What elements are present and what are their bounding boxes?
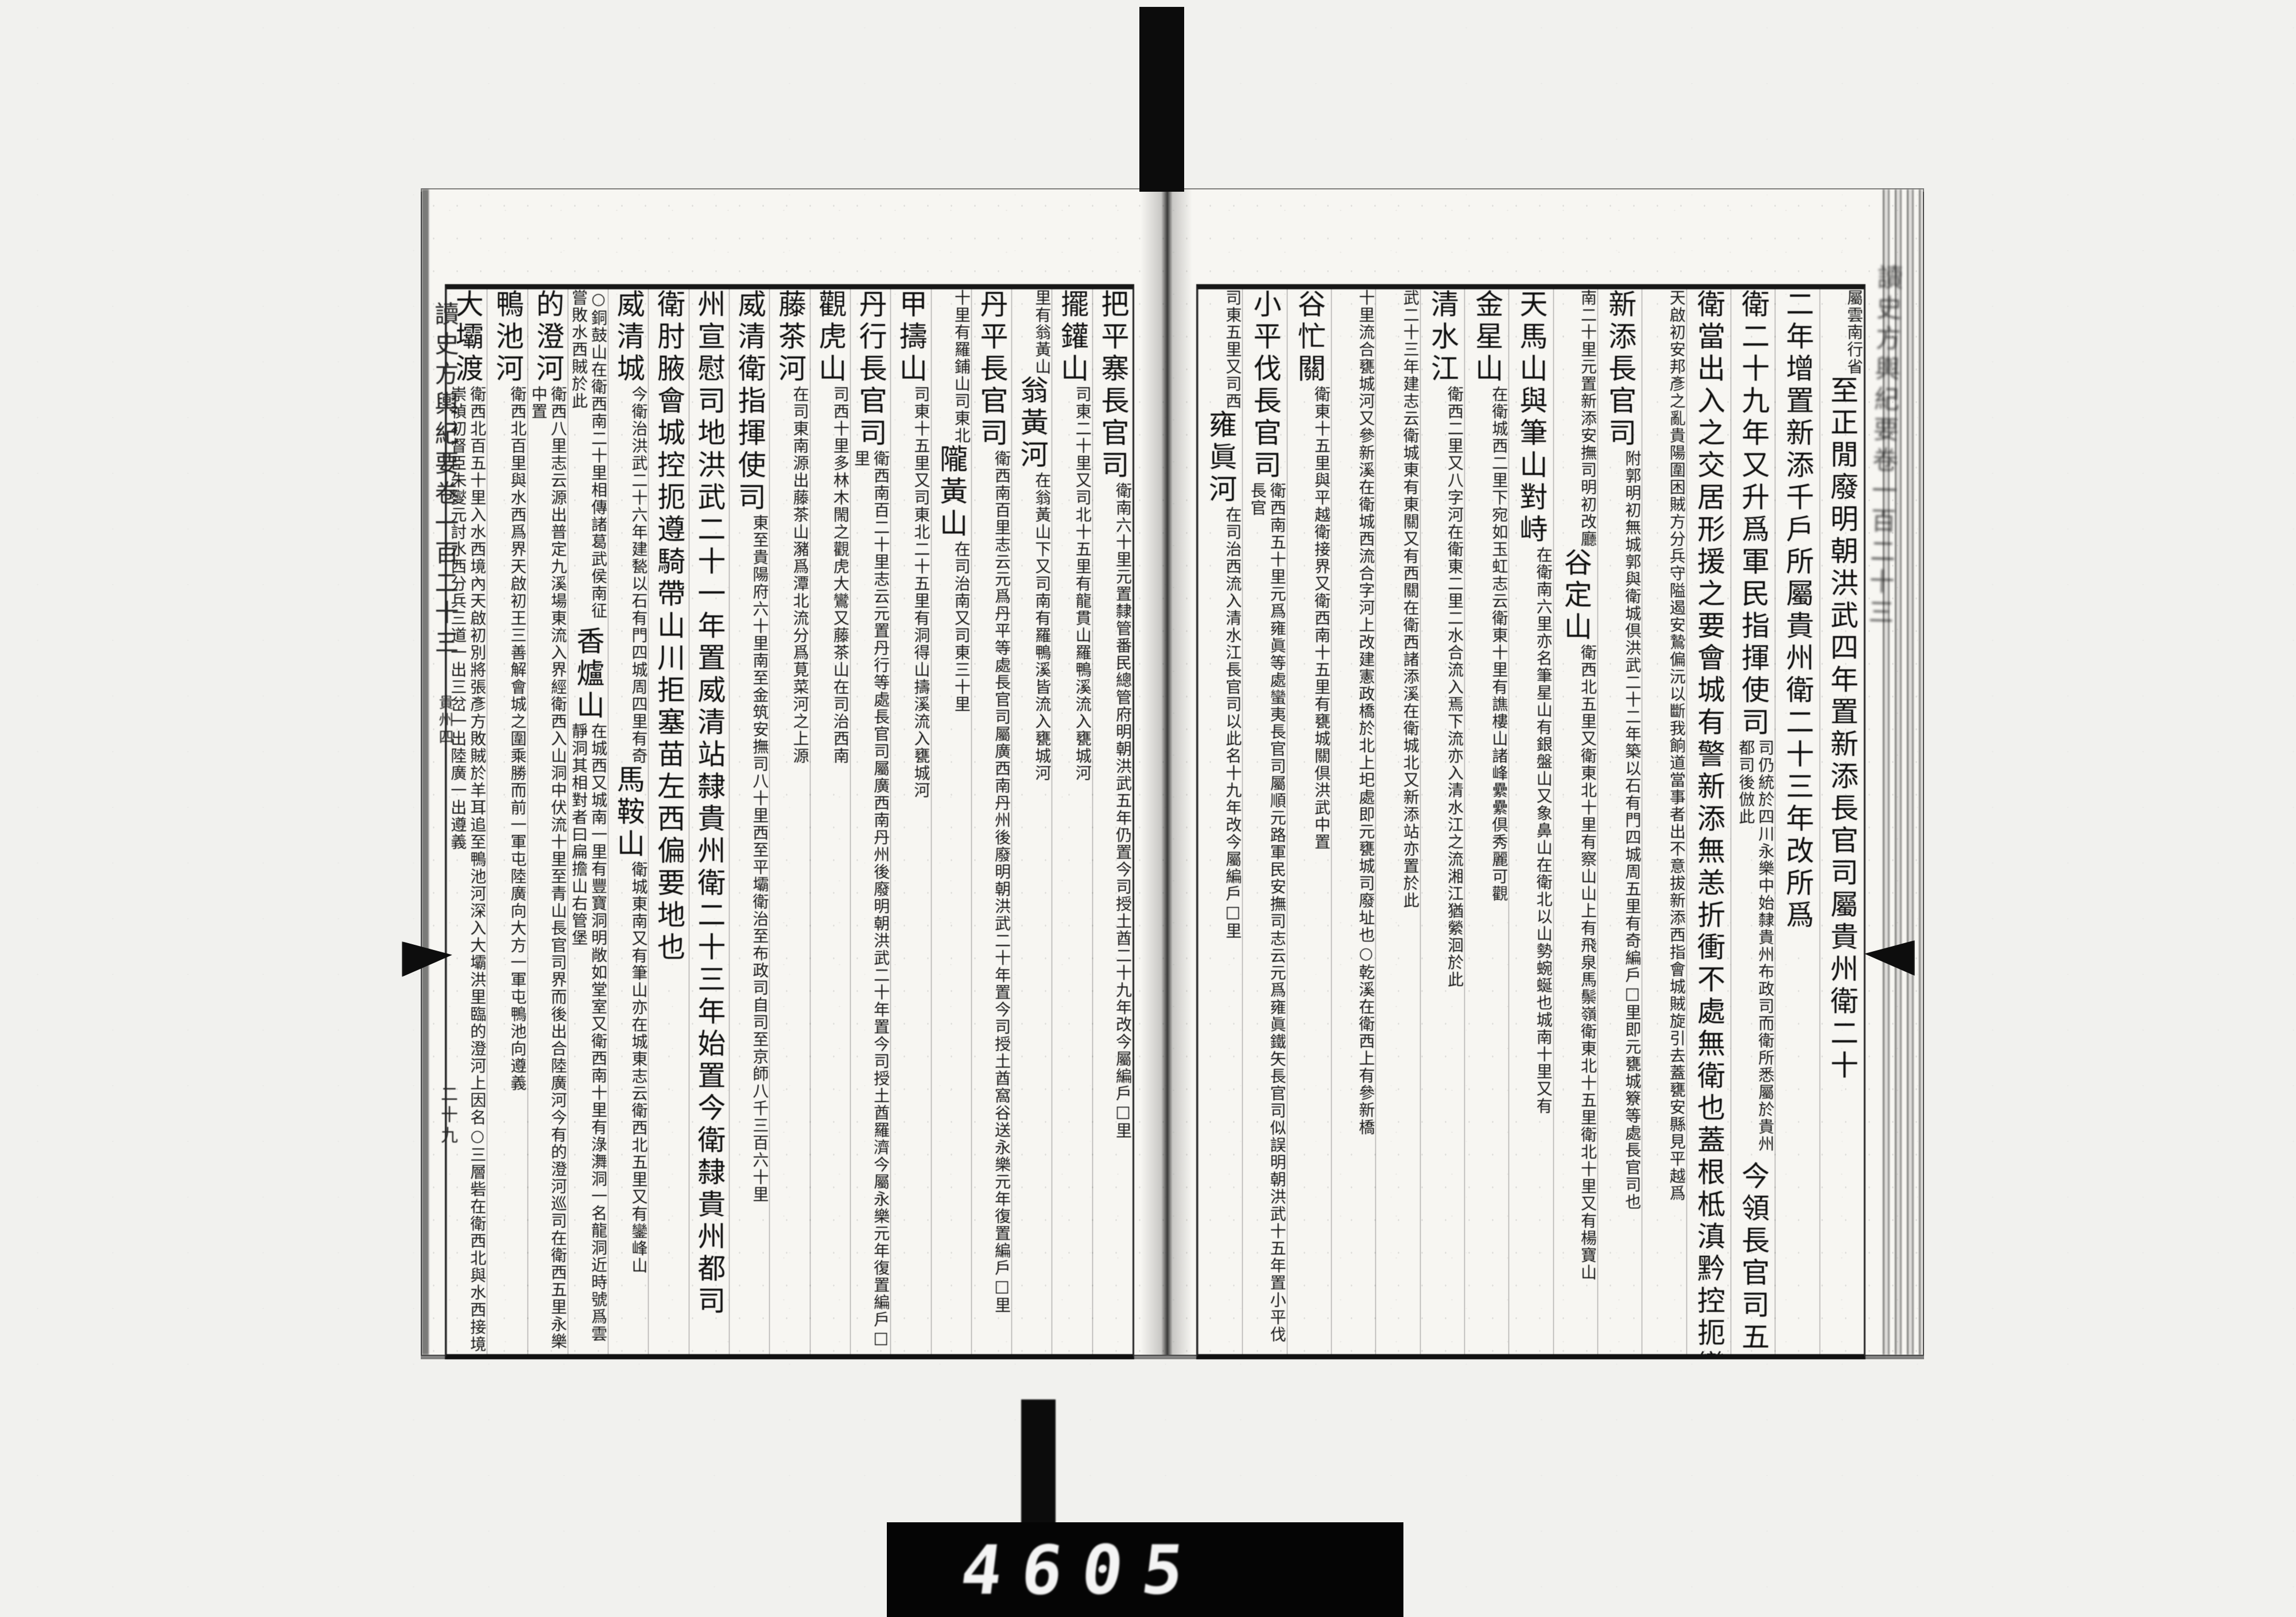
column-main-text: 天馬山與筆山對峙 (1511, 289, 1552, 546)
column-main-text: 二年增置新添千戶所屬貴州衛二十三年改所爲 (1778, 289, 1818, 932)
column-main-text: 金星山 (1467, 289, 1507, 386)
column-main-text: 谷定山 (1556, 548, 1596, 644)
column-main-text: 把平寨長官司 (1092, 289, 1133, 482)
text-column: 擺鑵山司東二十里又司北十五里有龍貫山羅鴨溪流入甕城河 (1052, 289, 1092, 1354)
column-annotation-text: 屬雲南行省 (1820, 289, 1864, 375)
column-annotation-text: 在司治南又司東三十里 (932, 541, 971, 713)
text-column: 天啟初安邦彥之亂貴陽圍困賊方分兵守隘遏安鷙偏沅以斷我餉道當事者出不意拔新添西指會… (1642, 289, 1686, 1354)
column-main-text: 大壩渡 (447, 289, 487, 386)
text-column: 衛二十九年又升爲軍民指揮使司司仍統於四川永樂中始隸貴州布政司而衛所悉屬於貴州都司… (1731, 289, 1775, 1354)
text-column: 十里流合甕城河又參新溪在衛城西流合字河上改建憲政橋於北上圯處即元甕城司廢址也○乾… (1331, 289, 1375, 1354)
frame-counter-digits: 4605 (957, 1530, 1208, 1610)
column-annotation-text: 衛城東南又有筆山亦在城東志云衛西北五里又有鑾峰山 (608, 861, 648, 1274)
text-column: 谷忙關衛東十五里與平越衛接界又衛西南十五里有甕城關倶洪武中置 (1287, 289, 1331, 1354)
text-column: 新添長官司附郭明初無城郭與衛城倶洪武二十二年築以石有門四城周五里有奇編戶□里即元… (1597, 289, 1642, 1354)
column-main-text: 翁黃河 (1012, 375, 1052, 472)
text-column: 觀虎山司西十里多林木閙之觀虎大鸞又藤茶山在司治西南 (810, 289, 850, 1354)
column-main-text: 擺鑵山 (1052, 289, 1092, 386)
text-column: 藤茶河在司東南源出藤茶山瀦爲潭北流分爲莧菜河之上源 (769, 289, 809, 1354)
text-column: 威清衛指揮使司東至貴陽府六十里南至金筑安撫司八十里西至平壩衛治至布政司自司至京師… (729, 289, 769, 1354)
column-annotation-text: 天啟初安邦彥之亂貴陽圍困賊方分兵守隘遏安鷙偏沅以斷我餉道當事者出不意拔新添西指會… (1642, 289, 1686, 1202)
text-column: 的澄河衛西八里志云源出普定九溪場東流入界經衛西入山洞中伏流十里至青山長官司界而後… (528, 289, 568, 1354)
column-main-text: 衛二十九年又升爲軍民指揮使司 (1733, 289, 1773, 739)
text-column: 衛肘腋會城控扼遵騎帶山川拒塞苗左西偏要地也 (648, 289, 688, 1354)
text-column: 威清城今衛治洪武二十六年建甃以石有門四城周四里有奇馬鞍山衛城東南又有筆山亦在城東… (608, 289, 648, 1354)
text-column: 衛當出入之交居形援之要會城有警新添無恙折衝不處無衛也蓋根柢滇黔控扼變左衛實居其上 (1686, 289, 1731, 1354)
column-annotation-text: 武二十三年建志云衛城東有東關又有西關在衛西諸添溪在衛城北又新添站亦置於此 (1376, 289, 1420, 909)
column-main-text: 衛當出入之交居形援之要會城有警新添無恙折衝不處無衛也蓋根柢滇黔控扼變左衛實居其上 (1689, 289, 1729, 1354)
column-main-text: 清水江 (1422, 289, 1463, 386)
column-annotation-text: ○銅鼓山在衛西南二十里相傳諸葛武侯南征嘗敗水西賊於此 (568, 289, 608, 626)
book-spread: 讀史方輿紀要卷一百二十三 貴州四 二十九 把平寨長官司衛南六十里元置隸管番民總管… (422, 189, 1923, 1355)
text-column: 小平伐長官司衛西南五十里元爲雍眞等處蠻夷長官司屬順元路軍民安撫司志云元爲雍眞鐵矢… (1242, 289, 1286, 1354)
frame-counter: 4605 (887, 1522, 1403, 1617)
text-column: 金星山在衛城西二里下宛如玉虹志云衛東十里有譙樓山諸峰纍纍倶秀麗可觀 (1464, 289, 1508, 1354)
column-annotation-text: 衛南六十里元置隸管番民總管府明朝洪武五年仍置今司授土酋二十九年改今屬編戶□里 (1093, 482, 1133, 1139)
column-annotation-text: 東至貴陽府六十里南至金筑安撫司八十里西至平壩衛治至布政司自司至京師八千三百六十里 (730, 514, 769, 1203)
top-binding-tab (1139, 7, 1184, 192)
column-annotation-text: 衛西八里志云源出普定九溪場東流入界經衛西入山洞中伏流十里至青山長官司界而後出合陸… (528, 386, 568, 1354)
column-annotation-text: 衛西南五十里元爲雍眞等處蠻夷長官司屬順元路軍民安撫司志云元爲雍眞鐵矢長官司似誤明… (1243, 482, 1286, 1354)
column-annotation-text: 司西十里多林木閙之觀虎大鸞又藤茶山在司治西南 (810, 386, 850, 765)
column-main-text: 雍眞河 (1200, 410, 1240, 506)
column-main-text: 至正閒廢明朝洪武四年置新添長官司屬貴州衛二十 (1822, 375, 1862, 1083)
left-page: 讀史方輿紀要卷一百二十三 貴州四 二十九 把平寨長官司衛南六十里元置隸管番民總管… (422, 189, 1154, 1355)
column-main-text: 隴黃山 (931, 444, 971, 541)
column-annotation-text: 在城西又城南一里有豐寶洞明敞如堂室又衛西南十里有淥㵲洞一名龍洞近時號爲雲靜洞其相… (568, 723, 608, 1354)
text-column: 南二十里元置新添安撫司明初改廳谷定山衛西北五里又衛東北十里有察山山上有飛泉馬鬃嶺… (1553, 289, 1597, 1354)
left-text-block: 把平寨長官司衛南六十里元置隸管番民總管府明朝洪武五年仍置今司授土酋二十九年改今屬… (445, 284, 1134, 1359)
column-annotation-text: 衛西北百里與水西爲界天啟初王三善解會城之圍乘勝而前一軍屯陸廣向大方一軍屯鴨池向遵… (487, 386, 527, 1092)
text-column: 武二十三年建志云衛城東有東關又有西關在衛西諸添溪在衛城北又新添站亦置於此 (1375, 289, 1420, 1354)
text-column: 甲擣山司東十五里又司東北二十五里有洞得山擣溪流入甕城河 (890, 289, 930, 1354)
right-text-block: 屬雲南行省至正閒廢明朝洪武四年置新添長官司屬貴州衛二十二年增置新添千戶所屬貴州衛… (1196, 284, 1865, 1359)
column-annotation-text: 衛西北五里又衛東北十里有察山山上有飛泉馬鬃嶺衛東北十五里衛北十里又有楊寶山 (1554, 644, 1597, 1281)
column-main-text: 州宣慰司地洪武二十一年置威清站隸貴州衛二十三年始置今衛隸貴州都司 (689, 289, 729, 1318)
scan-background: 讀史方輿紀要卷一百二十三 貴州四 二十九 把平寨長官司衛南六十里元置隸管番民總管… (0, 0, 2296, 1617)
column-annotation-text: 在司治西流入清水江長官司以此名十九年改今屬編戶□里 (1199, 506, 1242, 940)
text-column: ○銅鼓山在衛西南二十里相傳諸葛武侯南征嘗敗水西賊於此香爐山在城西又城南一里有豐寶… (568, 289, 608, 1354)
column-main-text: 馬鞍山 (608, 765, 649, 861)
text-column: 里有翁黃山翁黃河在翁黃山下又司南有羅鴨溪皆流入甕城河 (1011, 289, 1052, 1354)
column-main-text: 藤茶河 (770, 289, 810, 386)
text-column: 清水江衛西二里又八字河在衛東二里二水合流入焉下流亦入清水江之流湘江猶縈洄於此 (1420, 289, 1464, 1354)
column-main-text: 的澄河 (528, 289, 568, 386)
column-annotation-text: 司東二十里又司北十五里有龍貫山羅鴨溪流入甕城河 (1052, 386, 1092, 782)
column-annotation-text: 里有翁黃山 (1012, 289, 1052, 375)
text-column: 十里有羅鋪山司東北隴黃山在司治南又司東三十里 (931, 289, 971, 1354)
column-annotation-text: 衛西北百五十里入水西境內天啟初別將張彥方敗賊於羊耳追至鴨池河深入大壩洪里臨的澄河… (447, 386, 487, 1354)
column-annotation-text: 衛西南百二十里志云元置丹行等處長官司屬廣西南丹州後廢明朝洪武二十年置今司授土酋羅… (851, 450, 890, 1354)
column-main-text: 鴨池河 (487, 289, 528, 386)
column-annotation-text: 南二十里元置新添安撫司明初改廳 (1554, 289, 1597, 548)
column-annotation-text: 司東十五里又司東北二十五里有洞得山擣溪流入甕城河 (891, 386, 930, 799)
text-column: 州宣慰司地洪武二十一年置威清站隸貴州衛二十三年始置今衛隸貴州都司 (689, 289, 729, 1354)
column-annotation-text: 衛東十五里與平越衛接界又衛西南十五里有甕城關倶洪武中置 (1287, 386, 1331, 851)
column-annotation-text: 在衛南六里亦名筆星山有銀盤山又象鼻山在衛北以山勢蜿蜒也城南十里又有 (1509, 546, 1553, 1115)
text-column: 丹平長官司衛西南百里志云元爲丹平等處長官司屬廣西南丹州後廢明朝洪武二十年置今司授… (971, 289, 1011, 1354)
column-annotation-text: 在司東南源出藤茶山瀦爲潭北流分爲莧菜河之上源 (770, 386, 809, 765)
column-main-text: 今領長官司五 (1733, 1161, 1773, 1354)
column-main-text: 威清衛指揮使司 (730, 289, 770, 514)
column-annotation-text: 十里有羅鋪山司東北 (932, 289, 971, 444)
column-main-text: 谷忙關 (1289, 289, 1329, 386)
column-main-text: 丹平長官司 (971, 289, 1011, 450)
column-main-text: 小平伐長官司 (1245, 289, 1285, 482)
text-column: 天馬山與筆山對峙在衛南六里亦名筆星山有銀盤山又象鼻山在衛北以山勢蜿蜒也城南十里又… (1508, 289, 1553, 1354)
column-annotation-text: 今衛治洪武二十六年建甃以石有門四城周四里有奇 (608, 386, 648, 765)
column-annotation-text: 司仍統於四川永樂中始隸貴州布政司而衛所悉屬於貴州都司後倣此 (1731, 739, 1775, 1161)
column-annotation-text: 司東五里又司西 (1199, 289, 1242, 410)
column-main-text: 甲擣山 (891, 289, 931, 386)
column-annotation-text: 在衛城西二里下宛如玉虹志云衛東十里有譙樓山諸峰纍纍倶秀麗可觀 (1465, 386, 1508, 902)
text-column: 鴨池河衛西北百里與水西爲界天啟初王三善解會城之圍乘勝而前一軍屯陸廣向大方一軍屯鴨… (487, 289, 527, 1354)
right-page: 屬雲南行省至正閒廢明朝洪武四年置新添長官司屬貴州衛二十二年增置新添千戶所屬貴州衛… (1157, 189, 1923, 1355)
text-column: 丹行長官司衛西南百二十里志云元置丹行等處長官司屬廣西南丹州後廢明朝洪武二十年置今… (850, 289, 890, 1354)
text-column: 二年增置新添千戶所屬貴州衛二十三年改所爲 (1775, 289, 1819, 1354)
column-annotation-text: 附郭明初無城郭與衛城倶洪武二十二年築以石有門四城周五里有奇編戶□里即元甕城簝等處… (1598, 450, 1642, 1211)
text-column: 屬雲南行省至正閒廢明朝洪武四年置新添長官司屬貴州衛二十 (1820, 289, 1864, 1354)
right-edge-title: 讀史方輿紀要卷一百二十三 (1860, 263, 1906, 629)
bottom-binding-strip (1021, 1399, 1056, 1531)
column-main-text: 丹行長官司 (851, 289, 891, 450)
column-annotation-text: 十里流合甕城河又參新溪在衛城西流合字河上改建憲政橋於北上圯處即元甕城司廢址也○乾… (1332, 289, 1375, 1136)
column-main-text: 衛肘腋會城控扼遵騎帶山川拒塞苗左西偏要地也 (649, 289, 689, 964)
column-annotation-text: 衛西二里又八字河在衛東二里二水合流入焉下流亦入清水江之流湘江猶縈洄於此 (1421, 386, 1464, 988)
column-annotation-text: 衛西南百里志云元爲丹平等處長官司屬廣西南丹州後廢明朝洪武二十年置今司授土酋窩谷送… (972, 450, 1011, 1314)
text-column: 把平寨長官司衛南六十里元置隸管番民總管府明朝洪武五年仍置今司授土酋二十九年改今屬… (1092, 289, 1133, 1354)
column-main-text: 觀虎山 (810, 289, 850, 386)
column-main-text: 威清城 (608, 289, 649, 386)
column-annotation-text: 在翁黃山下又司南有羅鴨溪皆流入甕城河 (1012, 472, 1052, 782)
text-column: 司東五里又司西雍眞河在司治西流入清水江長官司以此名十九年改今屬編戶□里 (1198, 289, 1242, 1354)
text-column: 大壩渡衛西北百五十里入水西境內天啟初別將張彥方敗賊於羊耳追至鴨池河深入大壩洪里臨… (447, 289, 487, 1354)
column-main-text: 新添長官司 (1600, 289, 1640, 450)
column-main-text: 香爐山 (568, 626, 608, 723)
